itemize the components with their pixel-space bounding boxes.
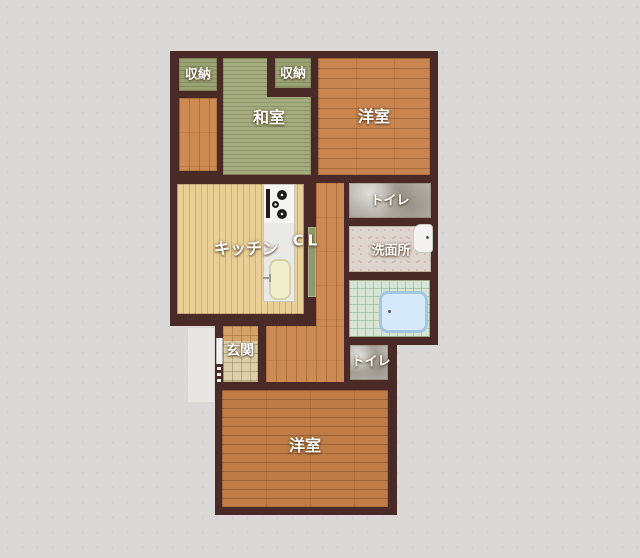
room-hallway-lower xyxy=(266,326,344,382)
stove-grill-bar xyxy=(266,189,270,218)
room-toilet-lower xyxy=(350,345,388,380)
stove-burner-bottom xyxy=(277,209,287,219)
kitchen-sink xyxy=(269,259,291,300)
entrance-porch xyxy=(187,327,215,403)
floor-plan-canvas: 収納 収納 和室 洋室 トイレ 洗面所 キッチン CL 玄関 トイレ 洋室 xyxy=(0,0,640,558)
washbasin-fixture xyxy=(413,224,433,253)
room-closet-left xyxy=(179,58,217,91)
front-door-track-dot xyxy=(217,373,221,376)
bathtub-fixture xyxy=(379,291,428,333)
entrance-doorstep xyxy=(223,326,258,341)
room-western-room-bottom xyxy=(222,390,388,507)
washbasin-drain-dot xyxy=(426,236,429,239)
kitchen-faucet-knob xyxy=(269,274,271,282)
room-hallway-upper xyxy=(316,183,344,326)
bathtub-drain-dot xyxy=(388,310,391,313)
stove-burner-top xyxy=(277,190,287,200)
wall-closet-right-bottom xyxy=(267,88,311,97)
room-storage-strip xyxy=(179,98,217,171)
closet-sliding-door xyxy=(308,227,316,297)
room-western-room-top xyxy=(318,58,430,175)
front-door-track-dot xyxy=(217,367,221,370)
front-door-track-dot xyxy=(217,379,221,382)
room-closet-right xyxy=(275,58,311,88)
front-door xyxy=(216,338,223,364)
room-toilet-upper xyxy=(349,183,431,218)
stove-burner-small xyxy=(272,201,279,208)
